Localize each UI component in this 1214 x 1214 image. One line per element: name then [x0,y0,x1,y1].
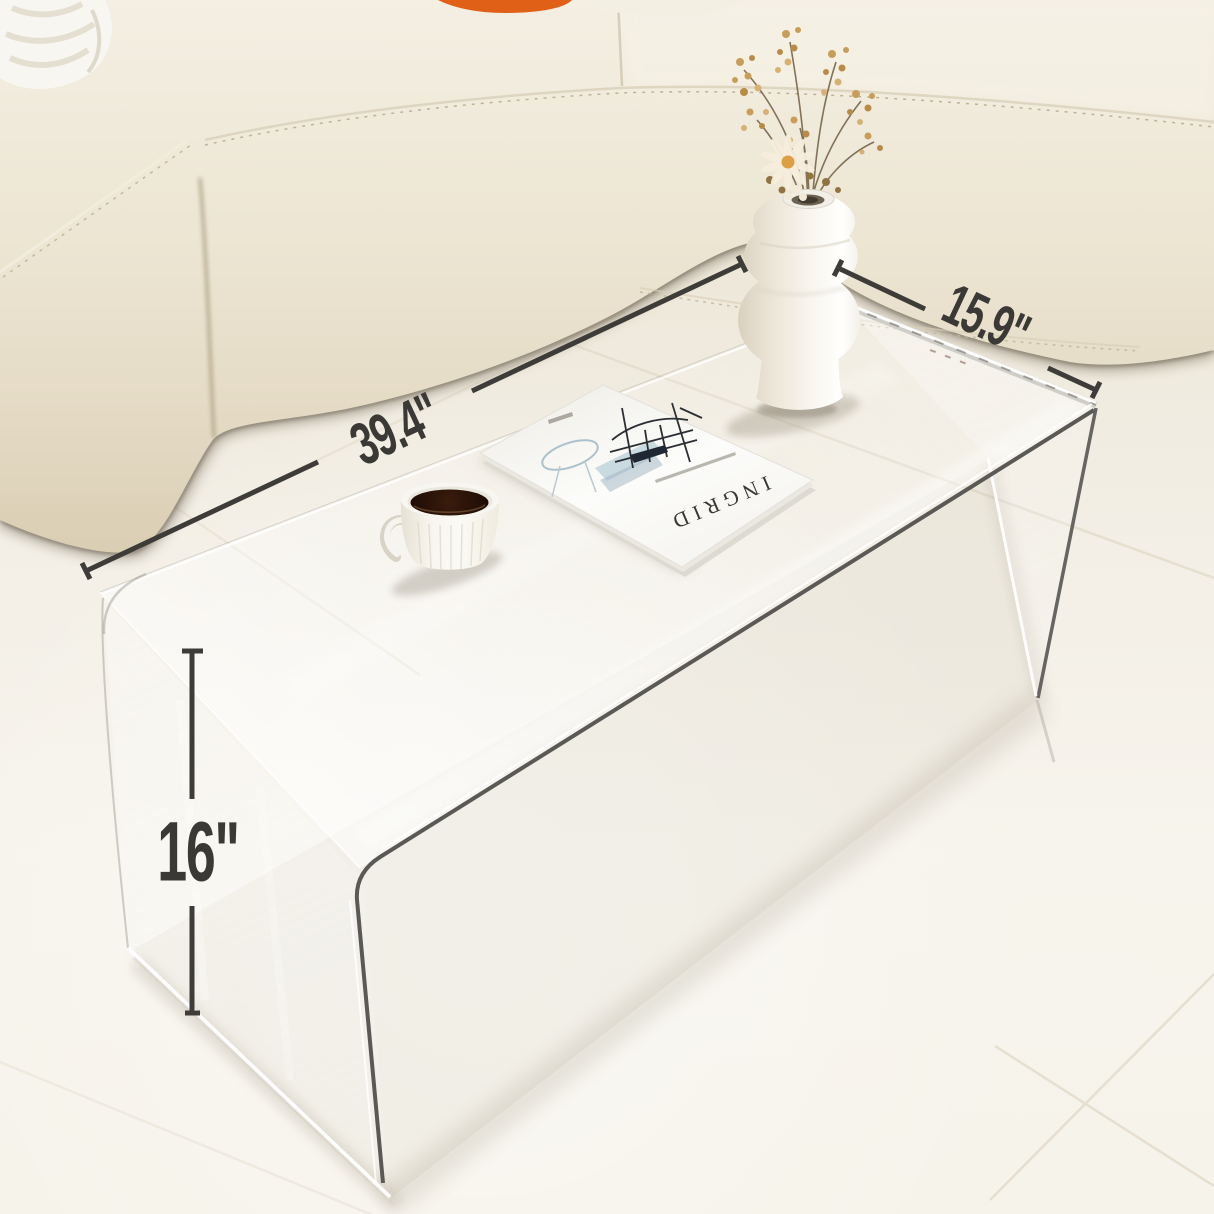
product-photo-acrylic-coffee-table: 39.4" 15.9" 16" INGRID [0,0,1214,1214]
daisy-center [782,156,795,169]
dimension-label-height: 16" [157,804,238,901]
scene-canvas [0,0,1214,1214]
